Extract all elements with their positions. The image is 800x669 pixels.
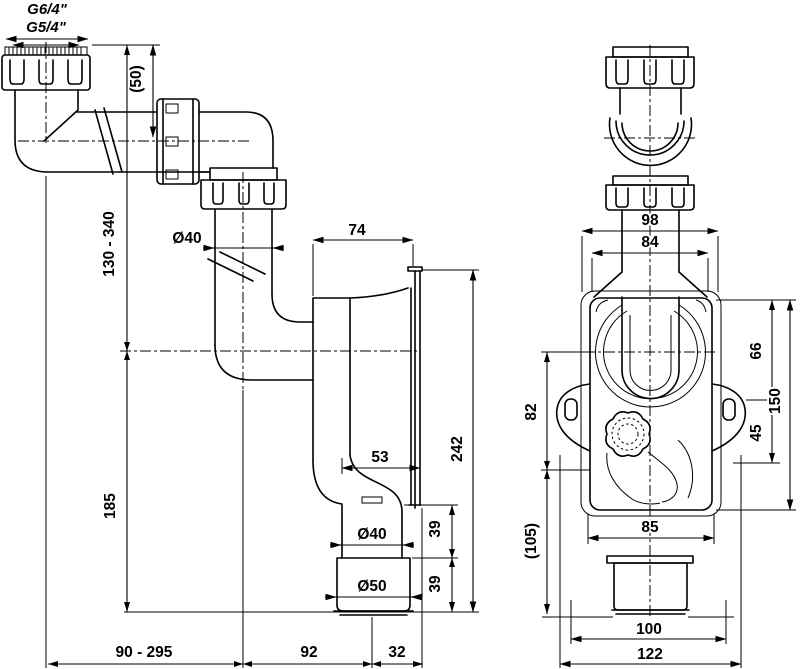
dim-label-90-295: 90 - 295	[116, 644, 173, 661]
body-front	[581, 272, 721, 516]
dim-label-g6-4: G6/4"	[27, 1, 68, 18]
down-elbow	[199, 112, 273, 172]
dim-label-242: 242	[449, 436, 466, 462]
dim-label-150: 150	[767, 388, 784, 414]
thread-hatch	[9, 47, 81, 55]
dim-label-84: 84	[641, 234, 659, 251]
dim-label-122: 122	[637, 646, 663, 663]
dim-label-inlet-adjust: (50)	[128, 65, 145, 93]
dim-label-53: 53	[371, 449, 389, 466]
mounting-slot-right	[723, 399, 735, 420]
mounting-ear-left	[557, 384, 590, 451]
dim-label-100: 100	[636, 621, 662, 638]
dim-label-85: 85	[641, 519, 659, 536]
dim-label-74: 74	[348, 222, 366, 239]
clamp-detail	[362, 497, 382, 503]
side-dimensions	[6, 39, 473, 667]
vertical-pipe	[208, 209, 272, 345]
dim-label-39a: 39	[427, 520, 444, 538]
cleanout-knob	[606, 412, 650, 456]
dim-label-98: 98	[641, 212, 659, 229]
dim-label-height-range: 130 - 340	[101, 211, 118, 277]
dim-label-185: 185	[102, 493, 119, 519]
front-view: 98 84 85 100 122 82 (105) 66 45 150	[523, 45, 796, 668]
side-extension-lines	[46, 45, 479, 668]
front-extension-lines	[541, 236, 796, 668]
siphon-technical-drawing: G6/4" G5/4" (50) 130 - 340 Ø40 74 242 53…	[0, 0, 800, 669]
dim-label-92: 92	[300, 644, 317, 661]
dim-label-82: 82	[523, 403, 540, 420]
technical-drawing-page: G6/4" G5/4" (50) 130 - 340 Ø40 74 242 53…	[0, 0, 800, 669]
mounting-slot-left	[565, 399, 577, 420]
dim-label-cup-dia: Ø50	[357, 578, 386, 595]
dim-label-g5-4: G5/4"	[26, 19, 67, 36]
dim-label-66: 66	[748, 342, 765, 360]
dim-label-inlet-dia: Ø40	[172, 230, 201, 247]
dim-label-32: 32	[388, 644, 405, 661]
dim-label-45: 45	[748, 424, 765, 442]
bottom-elbow	[215, 294, 313, 380]
trap-body-side	[313, 288, 408, 558]
dim-label-outlet-dia: Ø40	[357, 526, 386, 543]
inlet-elbow	[15, 90, 210, 174]
wall-flange-side	[408, 267, 422, 508]
wall-flange-front	[581, 291, 721, 516]
pipe-break-marks-2	[208, 252, 265, 281]
dim-label-105: (105)	[523, 523, 540, 559]
dim-label-39b: 39	[427, 575, 444, 593]
union-nut	[157, 99, 199, 184]
side-view: G6/4" G5/4" (50) 130 - 340 Ø40 74 242 53…	[2, 1, 479, 668]
mounting-ear-right	[712, 384, 745, 451]
